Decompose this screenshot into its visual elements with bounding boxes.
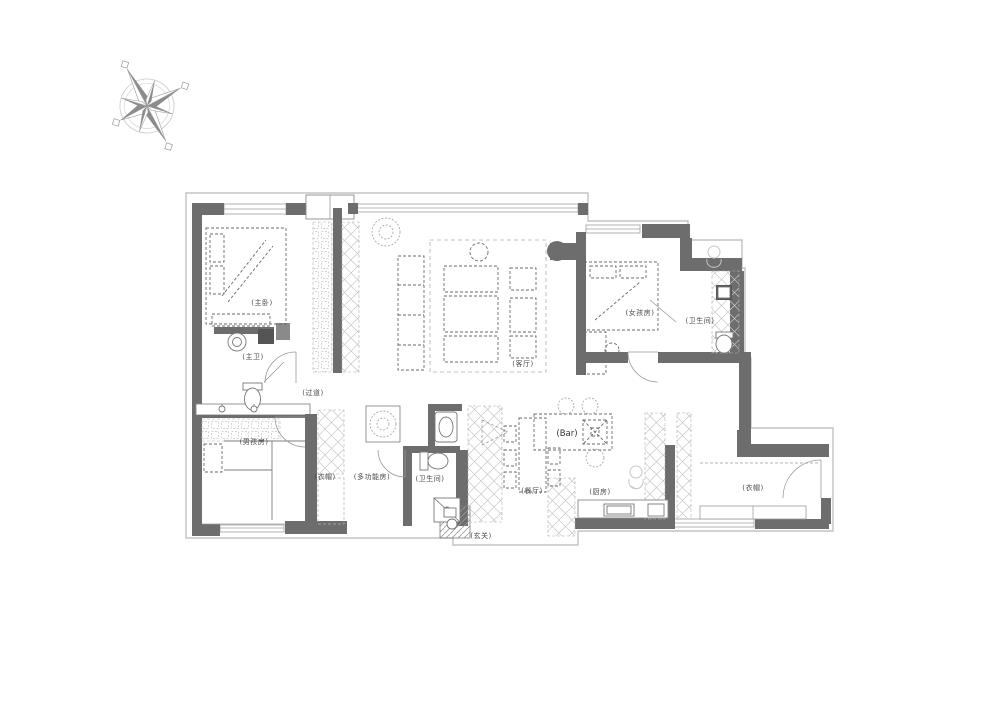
room-label-bar: (Bar) [556,429,577,439]
master-bed [206,228,286,326]
center-bath-toilet [420,452,448,470]
entry-bench [700,506,806,519]
room-label-master-bath: (主卫) [242,352,263,361]
plan-outline [186,193,833,545]
room-label-center-bathroom: (卫生间) [416,474,445,483]
cooktop [583,420,607,444]
room-label-master-bedroom: (主卧) [251,298,272,307]
room-label-foyer: (玄关) [470,531,491,540]
room-label-dining: (餐厅) [521,486,542,495]
master-bedroom-door [265,352,296,383]
room-label-kitchen: (厨房) [589,487,610,496]
room-label-multi-function: (多功能房) [354,472,390,481]
room-label-boys-room: (男孩房) [240,437,269,446]
girls-bath-sink [716,285,732,300]
page: (主卧) (主卫) (过道) (客厅) (女孩房) (卫生间) (男孩房) (衣… [0,0,1000,707]
kitchen-counter [578,500,668,518]
multi-room-table [366,406,400,442]
girls-bath-toilet [716,332,733,353]
girls-room-door [628,352,658,382]
compass-rose-icon [88,39,212,169]
floor-plan-canvas: (主卧) (主卫) (过道) (客厅) (女孩房) (卫生间) (男孩房) (衣… [0,0,1000,707]
center-bath-sink [435,412,457,442]
boys-desk [204,441,305,520]
living-sofa-group [398,240,546,372]
room-label-girls-room: (女孩房) [626,308,655,317]
room-label-closet: (衣帽) [314,472,335,481]
room-label-living-room: (客厅) [512,359,533,368]
plant [372,218,400,246]
master-bath-sink [228,333,246,351]
person-sketch-kitchen [629,466,643,489]
room-label-girls-bathroom: (卫生间) [686,316,715,325]
column [547,241,567,261]
room-label-hallway: (过道) [302,388,323,397]
main-entry-door [783,460,821,498]
room-label-entry-cloakroom: (衣帽) [742,483,763,492]
